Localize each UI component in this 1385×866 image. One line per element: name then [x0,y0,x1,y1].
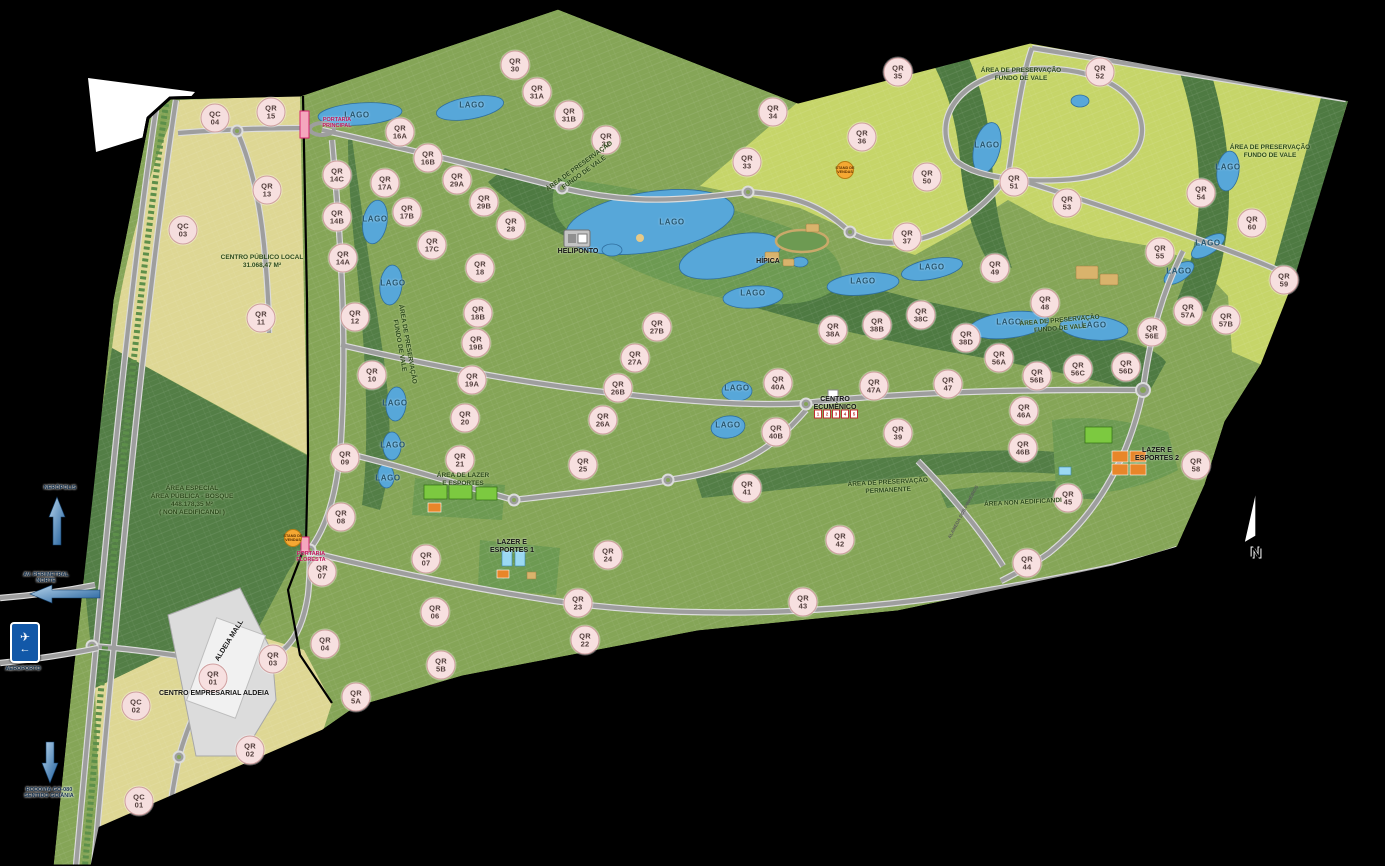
label-city: AEROPORTO [5,666,40,672]
label-lago: LAGO [715,421,741,430]
badge-qr-14b: QR14B [323,203,352,232]
label-porta: PORTARIAPRINCIPAL [322,117,351,129]
badge-qr-5b: QR5B [427,651,456,680]
left-arrow-icon: ← [20,644,31,654]
label-lago: LAGO [380,441,406,450]
label-area: ÁREA DE PRESERVAÇÃOFUNDO DE VALE [1019,314,1101,337]
badge-qr-03: QR03 [259,645,288,674]
badge-qr-42: QR42 [826,526,855,555]
badge-qr-33: QR33 [733,148,762,177]
badge-qr-31a: QR31A [523,78,552,107]
badge-qr-36: QR36 [848,123,877,152]
label-lago: LAGO [740,289,766,298]
label-area: ÁREA DE LAZERE ESPORTES [437,472,489,488]
badge-qr-30: QR30 [501,51,530,80]
label-fac: HELIPONTO [558,248,599,256]
badge-qr-40a: QR40A [764,369,793,398]
label-lago: LAGO [724,384,750,393]
badge-qr-28: QR28 [497,211,526,240]
badge-qr-07: QR07 [412,545,441,574]
label-lago: LAGO [659,218,685,227]
badge-qr-38c: QR38C [907,301,936,330]
badge-qc-01: QC01 [125,787,154,816]
badge-qr-10: QR10 [358,361,387,390]
badge-qr-46b: QR46B [1009,434,1038,463]
badge-qr-39: QR39 [884,419,913,448]
badge-qr-22: QR22 [571,626,600,655]
badge-qr-46a: QR46A [1010,397,1039,426]
badge-qr-44: QR44 [1013,549,1042,578]
badge-qr-59: QR59 [1270,266,1299,295]
badge-qr-57a: QR57A [1174,297,1203,326]
badge-qr-37: QR37 [893,223,922,252]
label-street: ALAMEDA DOS PINHEIROS [947,485,979,540]
badge-qr-09: QR09 [331,444,360,473]
badge-qr-38a: QR38A [819,316,848,345]
badge-qr-60: QR60 [1238,209,1267,238]
label-lago: LAGO [380,279,406,288]
label-lago: LAGO [974,141,1000,150]
badge-qr-29b: QR29B [470,188,499,217]
label-lago: LAGO [1166,267,1192,276]
badge-qr-27b: QR27B [643,313,672,342]
label-lago: LAGO [459,101,485,110]
label-fac: ALDEIA MALL [214,619,246,663]
label-area: CENTRO PÚBLICO LOCAL31.068,47 M² [221,254,304,270]
badge-qr-56b: QR56B [1023,362,1052,391]
badge-qr-13: QR13 [253,176,282,205]
badge-qr-56c: QR56C [1064,355,1093,384]
badge-qr-20: QR20 [451,404,480,433]
badge-qr-27a: QR27A [621,344,650,373]
badge-qr-04: QR04 [311,630,340,659]
badge-qr-19b: QR19B [462,329,491,358]
badge-qr-24: QR24 [594,541,623,570]
badge-qr-17c: QR17C [418,231,447,260]
badge-qr-16a: QR16A [386,118,415,147]
label-lago: LAGO [1195,239,1221,248]
badge-qr-35: QR35 [884,58,913,87]
map-labels-overlay: QC04QR15QR13QC03QR11QR12QR14CQR14BQR14AQ… [0,0,1385,866]
badge-qc-04: QC04 [201,104,230,133]
label-compassN: N [1251,545,1262,562]
masterplan-map: QC04QR15QR13QC03QR11QR12QR14CQR14BQR14AQ… [0,0,1385,866]
badge-qr-01: QR01 [199,664,228,693]
label-lago: LAGO [362,215,388,224]
label-porta: PORTARIAFLORESTA [296,551,325,563]
badge-qr-26b: QR26B [604,374,633,403]
badge-qr-57b: QR57B [1212,306,1241,335]
badge-qr-38d: QR38D [952,324,981,353]
badge-qr-53: QR53 [1053,189,1082,218]
badge-qr-31b: QR31B [555,101,584,130]
label-fac: HÍPICA [756,258,780,266]
badge-qr-43: QR43 [789,588,818,617]
badge-qr-55: QR55 [1146,238,1175,267]
badge-qr-54: QR54 [1187,179,1216,208]
badge-qr-11: QR11 [247,304,276,333]
badge-qr-41: QR41 [733,474,762,503]
badge-qr-40b: QR40B [762,418,791,447]
badge-qr-14a: QR14A [329,244,358,273]
badge-qr-38b: QR38B [863,311,892,340]
badge-qr-34: QR34 [759,98,788,127]
badge-qr-08: QR08 [327,503,356,532]
label-area: ÁREA ESPECIALÁREA PÚBLICA - BOSQUE448.17… [151,485,234,517]
badge-qr-18: QR18 [466,254,495,283]
badge-qc-03: QC03 [169,216,198,245]
badge-qr-17a: QR17A [371,169,400,198]
airplane-icon: ✈ [20,631,30,643]
badge-qr-49: QR49 [981,254,1010,283]
label-stand: STAND DEVENDAS [283,534,302,542]
badge-qr-47: QR47 [934,370,963,399]
badge-qr-16b: QR16B [414,144,443,173]
label-lago: LAGO [850,277,876,286]
label-fac: CENTRO EMPRESARIAL ALDEIA [159,690,269,698]
label-stand: STAND DEVENDAS [835,166,854,174]
label-area: ÁREA DE PRESERVAÇÃOFUNDO DE VALE [545,140,619,200]
label-city: RODOVIA GO-080SENTIDO GOIÂNIA [24,787,74,799]
badge-qr-18b: QR18B [464,299,493,328]
badge-qr-14c: QR14C [323,161,352,190]
badge-qr-48: QR48 [1031,289,1060,318]
label-city: AV. PERIMETRALNORTE [23,572,69,584]
badge-qr-25: QR25 [569,451,598,480]
label-area: ÁREA DE PRESERVAÇÃOFUNDO DE VALE [388,304,418,386]
label-lago: LAGO [1215,163,1241,172]
badge-qr-51: QR51 [1000,168,1029,197]
airport-sign: ✈ ← [10,622,40,663]
label-area: ÁREA DE PRESERVAÇÃOPERMANENTE [847,477,928,497]
badge-qr-06: QR06 [421,598,450,627]
badge-qr-02: QR02 [236,736,265,765]
badge-qr-56a: QR56A [985,344,1014,373]
badge-qr-17b: QR17B [393,198,422,227]
badge-qr-47a: QR47A [860,372,889,401]
badge-qr-52: QR52 [1086,58,1115,87]
badge-qr-5a: QR5A [342,683,371,712]
badge-qr-58: QR58 [1182,451,1211,480]
badge-qr-26a: QR26A [589,406,618,435]
badge-qr-50: QR50 [913,163,942,192]
label-city: NERÓPOLIS [44,485,76,491]
badge-qr-21: QR21 [446,446,475,475]
badge-qr-23: QR23 [564,589,593,618]
label-area: ÁREA DE PRESERVAÇÃOFUNDO DE VALE [1230,144,1310,160]
label-area: ÁREA NON AEDIFICANDI [984,497,1062,509]
label-fac: LAZER EESPORTES 1 [490,539,534,555]
label-fac: LAZER EESPORTES 2 [1135,447,1179,463]
label-lago: LAGO [382,399,408,408]
label-lago: LAGO [375,474,401,483]
badge-qr-56e: QR56E [1138,318,1167,347]
label-lago: LAGO [996,318,1022,327]
badge-qc-02: QC02 [122,692,151,721]
badge-qr-15: QR15 [257,98,286,127]
badge-qr-19a: QR19A [458,366,487,395]
ecumenical-center-numbers: 12345 [814,410,858,419]
badge-qr-29a: QR29A [443,166,472,195]
badge-qr-56d: QR56D [1112,353,1141,382]
label-lago: LAGO [919,263,945,272]
label-area: ÁREA DE PRESERVAÇÃOFUNDO DE VALE [981,67,1061,83]
badge-qr-12: QR12 [341,303,370,332]
